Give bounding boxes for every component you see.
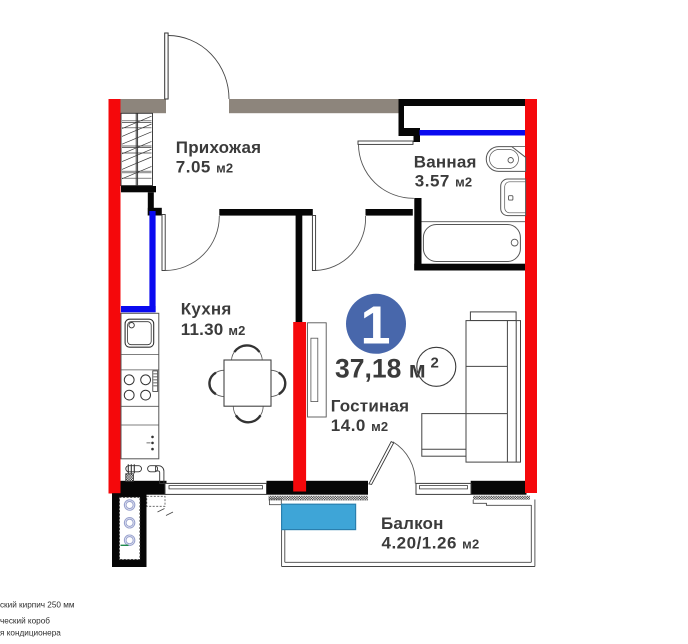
svg-text:37,18: 37,18 [335,354,401,384]
svg-text:Кухня: Кухня [181,300,232,319]
svg-text:2: 2 [431,355,439,372]
svg-text:7.05 м2: 7.05 м2 [176,158,234,177]
svg-text:3.57 м2: 3.57 м2 [415,172,473,191]
svg-text:14.0 м2: 14.0 м2 [331,416,389,435]
svg-text:Гостиная: Гостиная [331,397,409,416]
svg-text:11.30 м2: 11.30 м2 [181,320,246,339]
svg-text:Ванная: Ванная [414,153,477,172]
svg-text:Керамический кирпич 250 мм: Керамический кирпич 250 мм [0,600,75,609]
svg-text:Балкон: Балкон [381,514,444,533]
svg-text:1: 1 [360,295,390,355]
svg-text:Прихожая: Прихожая [176,138,261,157]
svg-text:4.20/1.26 м2: 4.20/1.26 м2 [382,534,480,553]
svg-text:Корзина для кондиционера: Корзина для кондиционера [0,629,61,638]
svg-text:Сантехнический короб: Сантехнический короб [0,616,50,625]
